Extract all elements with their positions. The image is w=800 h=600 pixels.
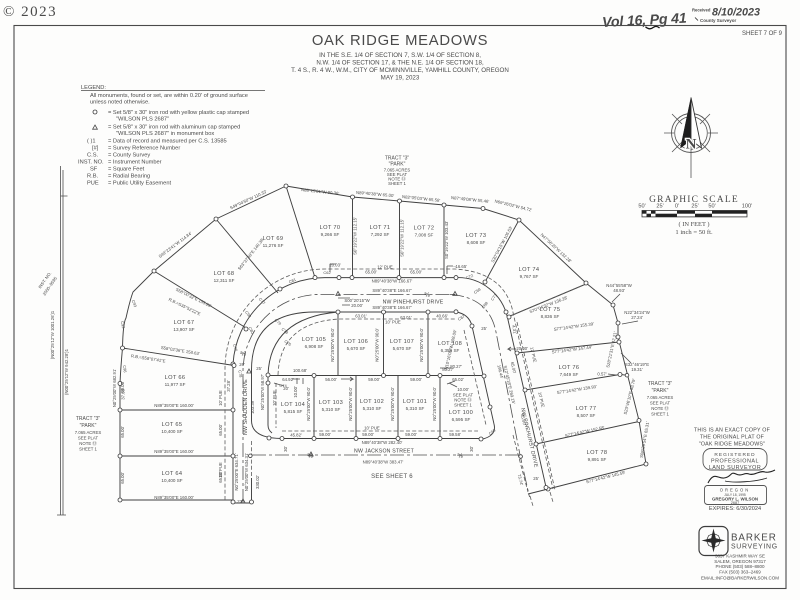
- svg-text:S0°19'22"W 112.15': S0°19'22"W 112.15': [400, 219, 405, 257]
- svg-text:59.00': 59.00': [405, 432, 417, 437]
- svg-text:( )1: ( )1: [87, 139, 96, 145]
- svg-text:65.00': 65.00': [218, 424, 223, 436]
- svg-text:(N00°25'12"W 1001.26')1: (N00°25'12"W 1001.26')1: [50, 310, 55, 359]
- svg-text:25': 25': [481, 326, 487, 331]
- svg-text:( IN FEET ): ( IN FEET ): [679, 221, 710, 228]
- svg-text:SEE PLAT: SEE PLAT: [650, 401, 671, 406]
- svg-text:25': 25': [533, 476, 539, 481]
- svg-text:N89°40'38"W 282.40': N89°40'38"W 282.40': [362, 440, 403, 445]
- svg-text:50': 50': [638, 204, 645, 210]
- svg-text:10,400 SF: 10,400 SF: [161, 429, 182, 434]
- svg-text:0': 0': [675, 204, 679, 210]
- svg-text:19.31': 19.31': [631, 367, 643, 372]
- svg-text:SURVEYING: SURVEYING: [731, 544, 778, 551]
- svg-text:7.065 ACRES: 7.065 ACRES: [647, 395, 674, 400]
- svg-text:= Instrument Number: = Instrument Number: [108, 160, 162, 166]
- svg-text:EXPIRES: 6/30/2024: EXPIRES: 6/30/2024: [709, 506, 761, 512]
- svg-text:= Set 5/8" x 30" iron rod wit: = Set 5/8" x 30" iron rod with aluminum …: [108, 125, 240, 131]
- svg-text:N0°25'00"W 90.0': N0°25'00"W 90.0': [432, 387, 437, 421]
- svg-text:8,836 SF: 8,836 SF: [541, 314, 560, 319]
- svg-text:TRACT "3": TRACT "3": [648, 381, 673, 387]
- svg-text:26': 26': [239, 362, 245, 367]
- svg-text:30': 30': [469, 446, 474, 452]
- svg-text:7.065 ACRES: 7.065 ACRES: [75, 430, 102, 435]
- svg-text:7,008 SF: 7,008 SF: [415, 233, 434, 238]
- svg-text:LOT 107: LOT 107: [390, 339, 414, 345]
- svg-text:= Data of record and measured: = Data of record and measured per C.S. 1…: [108, 139, 227, 145]
- svg-text:LOT 76: LOT 76: [559, 365, 580, 371]
- svg-text:65.00': 65.00': [410, 270, 422, 275]
- svg-text:13,907 SF: 13,907 SF: [173, 327, 194, 332]
- svg-text:59.00': 59.00': [410, 377, 422, 382]
- svg-text:REGISTERED: REGISTERED: [714, 452, 755, 458]
- svg-text:LOT 77: LOT 77: [576, 406, 597, 412]
- svg-text:LOT 73: LOT 73: [466, 233, 487, 239]
- svg-text:PROFESSIONAL: PROFESSIONAL: [711, 459, 759, 465]
- svg-text:= Set 5/8" x 30" iron rod wit: = Set 5/8" x 30" iron rod with yellow pl…: [108, 110, 249, 116]
- svg-text:LOT 100: LOT 100: [449, 410, 473, 416]
- svg-text:County Surveyor: County Surveyor: [700, 18, 737, 23]
- svg-text:= Square Feet: = Square Feet: [108, 167, 145, 173]
- svg-text:50': 50': [708, 204, 715, 210]
- svg-text:8/10/2023: 8/10/2023: [712, 7, 760, 19]
- svg-text:(N00°25'12"W 942.28')1: (N00°25'12"W 942.28')1: [64, 348, 69, 395]
- svg-text:N0°25'00"E 634.71': N0°25'00"E 634.71': [234, 453, 239, 490]
- svg-text:20.00': 20.00': [351, 303, 363, 308]
- svg-text:330.02': 330.02': [255, 475, 260, 489]
- svg-text:LOT 69: LOT 69: [263, 236, 284, 242]
- svg-text:N89°35'00"E 160.00': N89°35'00"E 160.00': [154, 449, 194, 454]
- svg-text:5,670 SF: 5,670 SF: [393, 346, 412, 351]
- svg-text:63.01': 63.01': [400, 315, 412, 320]
- svg-text:LOT 106: LOT 106: [344, 339, 368, 345]
- svg-text:THIS IS AN EXACT COPY OF: THIS IS AN EXACT COPY OF: [694, 428, 771, 434]
- svg-text:N89°35'00"E 160.00': N89°35'00"E 160.00': [154, 495, 194, 500]
- svg-text:9,891 SF: 9,891 SF: [588, 457, 607, 462]
- svg-text:SF: SF: [90, 167, 98, 173]
- svg-text:63.01': 63.01': [355, 314, 367, 319]
- svg-text:10' PUE: 10' PUE: [385, 320, 401, 325]
- svg-text:11,977 SF: 11,977 SF: [165, 382, 186, 387]
- svg-text:LOT 68: LOT 68: [214, 271, 235, 277]
- svg-text:25': 25': [691, 204, 698, 210]
- svg-text:5,310 SF: 5,310 SF: [322, 407, 341, 412]
- svg-text:S0°19'22"W 112.15': S0°19'22"W 112.15': [353, 217, 358, 255]
- svg-text:LOT 67: LOT 67: [174, 320, 195, 326]
- svg-text:10,400 SF: 10,400 SF: [161, 478, 182, 483]
- svg-text:LOT 64: LOT 64: [162, 471, 183, 477]
- svg-text:LOT 74: LOT 74: [519, 267, 540, 273]
- svg-text:40.66': 40.66': [436, 314, 448, 319]
- svg-text:SHEET 1: SHEET 1: [651, 412, 669, 417]
- svg-text:¬16.65': ¬16.65': [453, 264, 467, 269]
- svg-text:11,276 SF: 11,276 SF: [263, 243, 284, 248]
- svg-text:"WILSON PLS 2687" in monument: "WILSON PLS 2687" in monument box: [116, 131, 214, 137]
- svg-text:IN THE S.E. 1/4 OF SECTION 7,: IN THE S.E. 1/4 OF SECTION 7, S.W. 1/4 O…: [319, 52, 481, 59]
- svg-text:SEE SHEET 6: SEE SHEET 6: [371, 474, 413, 480]
- svg-text:OAK RIDGE MEADOWS: OAK RIDGE MEADOWS: [312, 33, 488, 49]
- svg-text:SHEET 1: SHEET 1: [454, 403, 472, 408]
- svg-text:FAX (503) 363–2469: FAX (503) 363–2469: [719, 569, 761, 574]
- svg-text:10' PUE: 10' PUE: [272, 390, 277, 406]
- svg-text:NW JACKSON STREET: NW JACKSON STREET: [354, 449, 415, 455]
- svg-text:℁: ℁: [424, 292, 430, 299]
- svg-text:8,507 SF: 8,507 SF: [577, 413, 596, 418]
- svg-text:C96: C96: [122, 365, 128, 374]
- svg-text:LOT 72: LOT 72: [414, 226, 435, 232]
- svg-text:C.S.: C.S.: [87, 153, 98, 159]
- svg-text:Received: Received: [692, 8, 711, 13]
- svg-text:25': 25': [256, 366, 262, 371]
- svg-text:7,649 SF: 7,649 SF: [560, 372, 579, 377]
- svg-text:37.28': 37.28': [226, 380, 231, 392]
- svg-text:27.24': 27.24': [631, 315, 643, 320]
- svg-text:100': 100': [742, 204, 752, 210]
- svg-text:6,908 SF: 6,908 SF: [305, 344, 324, 349]
- svg-text:LOT 105: LOT 105: [302, 337, 326, 343]
- svg-text:LOT 101: LOT 101: [403, 399, 427, 405]
- svg-text:N0°25'00"W 90.0': N0°25'00"W 90.0': [390, 387, 395, 421]
- svg-text:N89°40'38"W 383.47': N89°40'38"W 383.47': [363, 460, 404, 465]
- svg-text:10.00': 10.00': [293, 386, 298, 398]
- svg-text:MAY 19, 2023: MAY 19, 2023: [381, 75, 420, 82]
- svg-text:103.39': 103.39': [250, 400, 255, 414]
- svg-text:10' PUE: 10' PUE: [218, 390, 223, 406]
- svg-text:All monuments, found or set, a: All monuments, found or set, are within …: [90, 93, 248, 99]
- svg-text:© 2023: © 2023: [3, 4, 57, 20]
- svg-text:N: N: [686, 137, 697, 153]
- svg-text:N0°25'00"W 90.0': N0°25'00"W 90.0': [419, 328, 424, 362]
- svg-text:N0°25'00"W 634.31': N0°25'00"W 634.31': [244, 453, 249, 492]
- svg-text:10' PUE: 10' PUE: [364, 426, 380, 431]
- svg-text:45.82': 45.82': [290, 433, 302, 438]
- svg-text:"PARK": "PARK": [652, 388, 669, 394]
- svg-text:10.00': 10.00': [457, 387, 469, 392]
- svg-text:LOT 102: LOT 102: [360, 399, 384, 405]
- svg-text:N0°25'00"W 58.97': N0°25'00"W 58.97': [260, 374, 265, 410]
- svg-text:59.58': 59.58': [449, 432, 461, 437]
- svg-text:9,266 SF: 9,266 SF: [321, 232, 340, 237]
- svg-text:OREGON: OREGON: [720, 488, 751, 493]
- svg-text:= Survey Reference Number: = Survey Reference Number: [108, 146, 180, 152]
- svg-text:20.03': 20.03': [329, 263, 341, 268]
- svg-text:8,608 SF: 8,608 SF: [467, 240, 486, 245]
- svg-text:5,310 SF: 5,310 SF: [363, 406, 382, 411]
- svg-text:48.93': 48.93': [613, 288, 625, 293]
- svg-text:LOT 78: LOT 78: [587, 450, 608, 456]
- svg-text:= County Survey: = County Survey: [108, 153, 150, 159]
- svg-text:SHEET 1: SHEET 1: [388, 181, 406, 186]
- svg-text:N89°35'00"E 160.00': N89°35'00"E 160.00': [154, 403, 194, 408]
- svg-text:R.B.: R.B.: [87, 174, 98, 180]
- svg-text:LOT 66: LOT 66: [165, 375, 186, 381]
- svg-text:20': 20': [283, 386, 289, 391]
- svg-text:TRACT "3": TRACT "3": [76, 416, 101, 422]
- svg-text:3657 KASHMIR WAY SE: 3657 KASHMIR WAY SE: [715, 554, 765, 559]
- svg-text:℁: ℁: [240, 351, 246, 358]
- svg-text:12' PUE: 12' PUE: [377, 265, 393, 270]
- svg-text:"OAK RIDGE MEADOWS": "OAK RIDGE MEADOWS": [699, 442, 765, 448]
- svg-text:7,292 SF: 7,292 SF: [371, 232, 390, 237]
- svg-text:6,595 SF: 6,595 SF: [452, 417, 471, 422]
- svg-text:N0°25'00"W 90.0': N0°25'00"W 90.0': [306, 387, 311, 421]
- svg-text:PHONE (503) 588–8800: PHONE (503) 588–8800: [715, 564, 765, 569]
- svg-text:65.00': 65.00': [120, 426, 125, 438]
- svg-text:[#]: [#]: [92, 146, 99, 152]
- svg-text:100.68': 100.68': [293, 368, 307, 373]
- svg-text:S89°40'38"E 166.67': S89°40'38"E 166.67': [372, 305, 411, 310]
- svg-text:BARKER: BARKER: [731, 533, 777, 544]
- svg-text:NW SHADDEN DRIVE: NW SHADDEN DRIVE: [243, 379, 249, 435]
- svg-text:56.00': 56.00': [325, 377, 337, 382]
- svg-text:N0°25'00"W 90.0': N0°25'00"W 90.0': [330, 328, 335, 362]
- svg-text:5,310 SF: 5,310 SF: [406, 406, 425, 411]
- svg-text:LOT 104: LOT 104: [281, 402, 305, 408]
- svg-text:N0°25'00"W 682.91': N0°25'00"W 682.91': [112, 369, 117, 408]
- svg-text:"WILSON PLS 2687": "WILSON PLS 2687": [116, 117, 169, 123]
- svg-text:SEE PLAT: SEE PLAT: [78, 436, 99, 441]
- svg-text:5,815 SF: 5,815 SF: [284, 409, 303, 414]
- svg-text:59.00': 59.00': [368, 377, 380, 382]
- svg-text:= Radial Bearing: = Radial Bearing: [108, 174, 150, 180]
- svg-text:N0°25'00"W 90.0': N0°25'00"W 90.0': [348, 387, 353, 421]
- svg-text:LOT 70: LOT 70: [320, 225, 341, 231]
- svg-text:PUE: PUE: [87, 181, 99, 187]
- svg-text:N0°25'00"W 90.0': N0°25'00"W 90.0': [375, 328, 380, 362]
- svg-text:65.00': 65.00': [365, 270, 377, 275]
- svg-text:1 inch = 50 ft.: 1 inch = 50 ft.: [675, 229, 713, 236]
- svg-text:S0°19'22"W 103.43': S0°19'22"W 103.43': [444, 221, 449, 259]
- svg-text:25': 25': [656, 204, 663, 210]
- svg-text:T. 4 S., R. 4 W., W.M., CITY O: T. 4 S., R. 4 W., W.M., CITY OF MCMINNVI…: [291, 67, 509, 74]
- svg-text:65.00': 65.00': [120, 472, 125, 484]
- svg-text:LOT 103: LOT 103: [319, 400, 343, 406]
- svg-text:INST. NO.: INST. NO.: [78, 160, 104, 166]
- svg-text:5,670 SF: 5,670 SF: [347, 346, 366, 351]
- svg-text:N89°40'38"W 166.67': N89°40'38"W 166.67': [372, 279, 413, 284]
- svg-text:EMAIL:INFO@BARKERWILSON.COM: EMAIL:INFO@BARKERWILSON.COM: [701, 575, 779, 580]
- svg-text:= Public Utility Easement: = Public Utility Easement: [108, 181, 171, 187]
- svg-text:9,767 SF: 9,767 SF: [520, 274, 539, 279]
- svg-text:THE ORIGINAL PLAT OF: THE ORIGINAL PLAT OF: [700, 435, 765, 441]
- svg-text:N.W. 1/4 OF SECTION 17, & THE: N.W. 1/4 OF SECTION 17, & THE N.E. 1/4 O…: [316, 60, 484, 67]
- svg-text:59.00': 59.00': [362, 432, 374, 437]
- svg-text:LAND SURVEYOR: LAND SURVEYOR: [709, 465, 762, 471]
- svg-text:LOT 71: LOT 71: [370, 225, 391, 231]
- svg-text:59.00': 59.00': [319, 432, 331, 437]
- svg-text:2687: 2687: [731, 501, 739, 505]
- svg-text:S89°40'38"E 166.67': S89°40'38"E 166.67': [372, 288, 411, 293]
- svg-text:0.57': 0.57': [597, 372, 606, 377]
- svg-text:37.68': 37.68': [121, 388, 126, 400]
- svg-text:LOT 65: LOT 65: [162, 422, 183, 428]
- svg-text:SHEET 1: SHEET 1: [79, 447, 97, 452]
- svg-text:64.92': 64.92': [282, 377, 294, 382]
- svg-text:"PARK": "PARK": [80, 423, 97, 429]
- svg-text:℁: ℁: [457, 453, 463, 460]
- svg-text:12,311 SF: 12,311 SF: [214, 278, 235, 283]
- svg-text:SHEET 7 OF 9: SHEET 7 OF 9: [742, 31, 783, 37]
- svg-text:30': 30': [283, 446, 288, 452]
- svg-text:–20.00': –20.00': [514, 346, 528, 351]
- svg-text:10' PUE: 10' PUE: [218, 462, 223, 478]
- svg-text:unless noted otherwise.: unless noted otherwise.: [90, 100, 150, 106]
